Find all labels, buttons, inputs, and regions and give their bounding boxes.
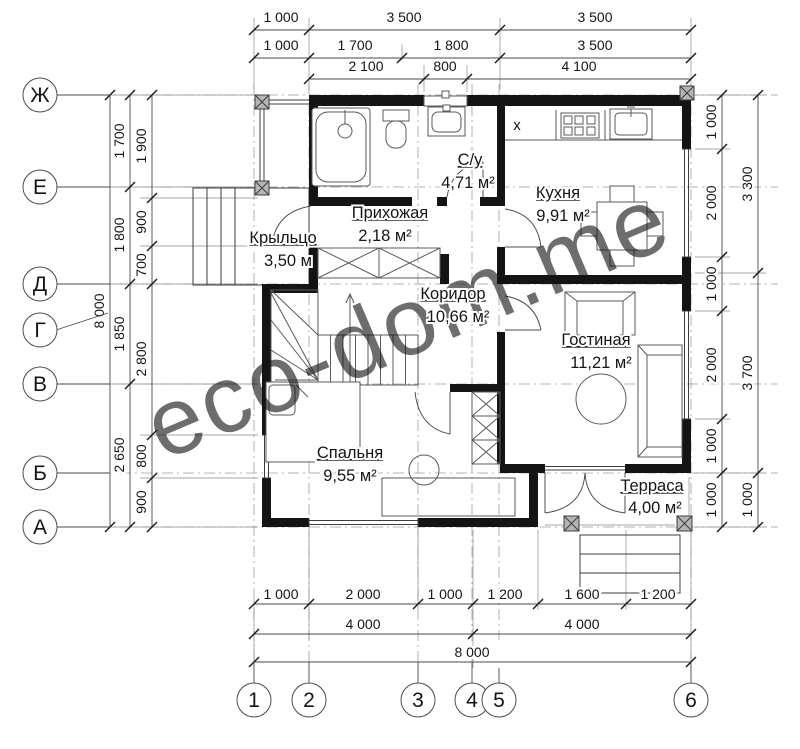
dim-label: 1 600: [564, 586, 599, 602]
dim-label: 1 700: [337, 37, 372, 53]
dim-label: 1 800: [111, 217, 127, 252]
dim-label: 1 000: [427, 586, 462, 602]
wall: [262, 518, 309, 527]
dim-label: 1 800: [433, 37, 468, 53]
dim-label: 1 900: [133, 128, 149, 163]
dim-label: 2 650: [111, 437, 127, 472]
terrace-french-doors: [545, 473, 625, 513]
room-area: 3,50 м: [264, 252, 312, 270]
dim-label: 800: [433, 58, 457, 74]
living-right-window: [682, 311, 691, 419]
stove-icon: [561, 113, 599, 138]
wall: [418, 518, 538, 527]
dim-label: 800: [133, 444, 149, 468]
dim-label: 1 700: [111, 123, 127, 158]
dim-label: 4 000: [564, 616, 599, 632]
wall: [682, 419, 691, 473]
room-name: Спальня: [317, 444, 383, 462]
room-name: Гостиная: [561, 331, 630, 349]
terrace-post-icon: [564, 516, 579, 531]
washbasin-icon: [428, 105, 465, 136]
axis-label: А: [33, 516, 47, 539]
kitchen-right-window: [682, 149, 691, 257]
room-name: С/у: [458, 151, 484, 169]
dim-label: 4 100: [561, 58, 596, 74]
chair-icon: [409, 455, 439, 485]
room-name: Коридор: [420, 285, 485, 303]
axis-label: Г: [34, 319, 45, 342]
room-area: 2,18 м²: [358, 227, 412, 245]
wall: [497, 106, 505, 203]
bottom-dimension-labels: 1 000 2 000 1 000 1 200 1 600 1 200 4 00…: [263, 586, 675, 660]
dim-label: 2 100: [348, 58, 383, 74]
dim-label: 3 500: [386, 9, 421, 25]
wall: [500, 464, 545, 473]
dim-label: 2 000: [703, 185, 719, 220]
room-area: 9,91 м²: [536, 207, 590, 225]
wall: [437, 197, 447, 206]
sofa-icon: [638, 345, 682, 457]
axis-label: Б: [33, 462, 47, 485]
dim-label: 1 200: [487, 586, 522, 602]
room-area: 4,00 м²: [628, 499, 682, 517]
bedroom-door: [415, 392, 450, 434]
dim-label: 2 000: [703, 347, 719, 382]
dim-label: 1 000: [739, 482, 755, 517]
left-dimension-labels: 8 000 1 700 1 800 1 850 2 650 1 900 900 …: [91, 123, 149, 513]
dim-label: 8 000: [454, 644, 489, 660]
dim-label: 1 000: [263, 9, 298, 25]
dim-label: 700: [133, 253, 149, 277]
wall: [625, 464, 691, 473]
dim-label: 2 800: [133, 341, 149, 376]
axis-label: В: [33, 373, 47, 396]
bathtub-icon: [312, 108, 370, 186]
floor-plan-page: eco-dom.me x 1 000 3 500 3 500 1 000 1 7…: [0, 0, 800, 749]
room-name: Терраса: [620, 477, 684, 495]
porch-post-icon: [255, 181, 269, 195]
room-name: Прихожая: [352, 204, 428, 222]
dim-label: 1 000: [703, 482, 719, 517]
corridor-closet: [472, 392, 500, 464]
room-area: 9,55 м²: [323, 467, 377, 485]
terrace-french-door-sill: [545, 467, 625, 471]
axis-label: Д: [33, 273, 47, 296]
kitchen-marker: x: [513, 117, 521, 134]
axis-label: 3: [412, 689, 424, 712]
porch-canopy-lines: [260, 100, 309, 182]
dim-label: 1 000: [703, 104, 719, 139]
dim-label: 900: [133, 490, 149, 514]
axis-label: 6: [685, 689, 697, 712]
wall: [529, 464, 538, 527]
axis-label: 2: [303, 689, 315, 712]
dim-label: 3 500: [577, 9, 612, 25]
wall: [682, 95, 691, 149]
room-area: 4,71 м²: [441, 174, 495, 192]
dim-label: 3 500: [577, 37, 612, 53]
dim-label: 3 300: [739, 166, 755, 201]
kitchen-sink-icon: [610, 107, 652, 139]
dim-label: 4 000: [345, 616, 380, 632]
dim-label: 2 000: [345, 586, 380, 602]
wall: [467, 95, 691, 106]
porch-post-icon: [255, 95, 269, 109]
axis-label: 4: [466, 689, 478, 712]
dim-label: 1 850: [111, 316, 127, 351]
column-axis-bubbles: 1 2 3 4 5 6: [237, 662, 708, 717]
axis-label: Ж: [30, 84, 50, 107]
top-dimension-labels: 1 000 3 500 3 500 1 000 1 700 1 800 3 50…: [263, 9, 612, 74]
dim-label: 900: [133, 210, 149, 234]
wall: [309, 95, 424, 106]
bedroom-bottom-window: [309, 518, 418, 527]
dim-label: 1 000: [263, 586, 298, 602]
dim-label: 3 700: [739, 355, 755, 390]
roof-post-icon: [680, 86, 694, 100]
axis-label: Е: [33, 176, 47, 199]
terrace-post-icon: [677, 516, 692, 531]
room-area: 10,66 м²: [427, 308, 490, 326]
floor-plan-drawing: eco-dom.me x 1 000 3 500 3 500 1 000 1 7…: [0, 0, 800, 749]
toilet-icon: [383, 110, 409, 148]
porch-steps: [207, 188, 235, 285]
dim-label: 1 000: [703, 428, 719, 463]
dim-label: 1 000: [703, 266, 719, 301]
dim-label: 1 000: [263, 37, 298, 53]
room-area: 11,21 м²: [570, 354, 632, 372]
entrance-door-top: [424, 91, 467, 106]
wall: [450, 384, 497, 392]
round-table-icon: [576, 374, 626, 424]
room-name: Кухня: [536, 184, 580, 202]
room-name: Крыльцо: [249, 229, 316, 247]
dim-label: 8 000: [91, 293, 107, 328]
axis-label: 5: [493, 689, 505, 712]
wall: [497, 332, 505, 464]
axis-label: 1: [248, 689, 260, 712]
wall: [480, 197, 505, 206]
dim-label: 1 200: [640, 586, 675, 602]
